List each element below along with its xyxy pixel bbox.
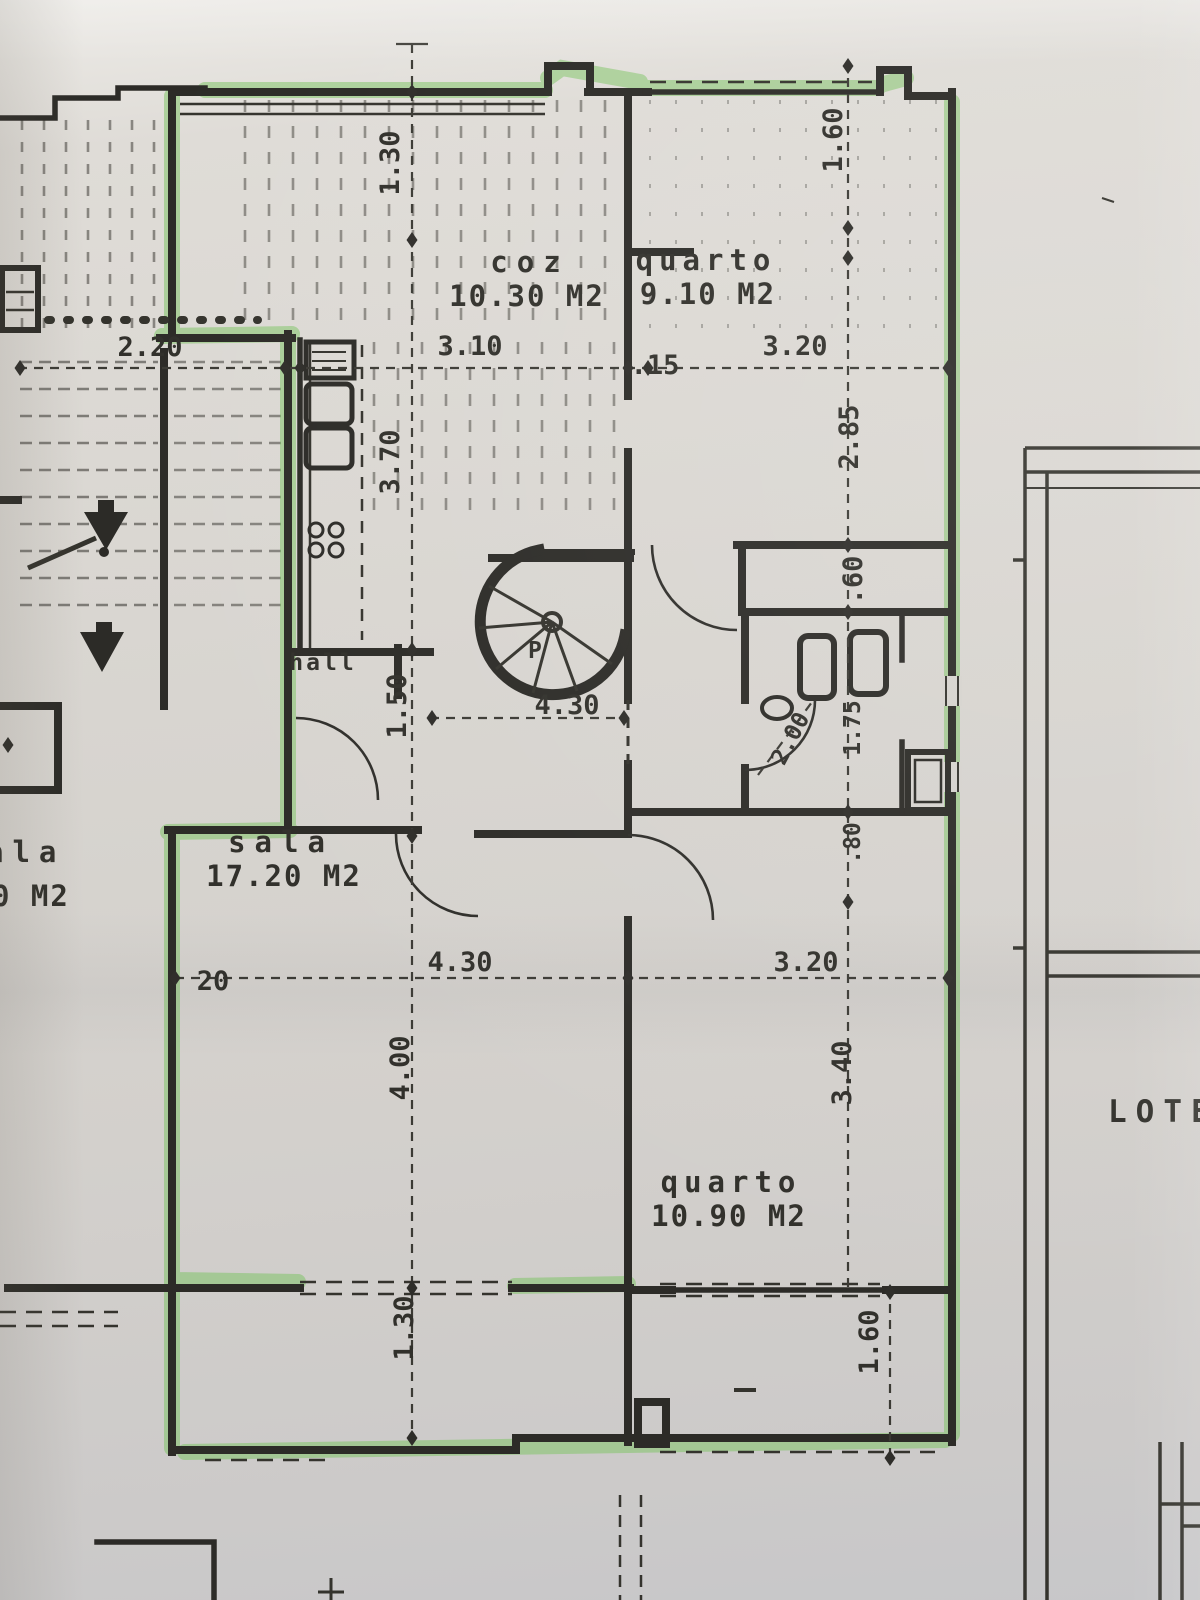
wall-secondary — [0, 88, 902, 1600]
room-area-quarto-bottom: 10.90 M2 — [651, 1199, 807, 1233]
dim-sala-depth: 4.00 — [385, 1035, 416, 1100]
dim-quarto-top-depth: 2.85 — [834, 404, 865, 469]
appliance-icon-2 — [306, 428, 352, 468]
dim-hall-length: 4.30 — [534, 690, 599, 721]
neighbor-fixture-stub — [2, 268, 38, 330]
dim-stair-width: 2.20 — [117, 332, 182, 363]
wall-main — [0, 66, 952, 1452]
dim-wall-15: .15 — [631, 350, 680, 381]
bidet-icon — [850, 632, 886, 694]
room-label-quarto-top: quarto — [636, 243, 777, 277]
toilet-icon — [800, 636, 834, 698]
dim-rec-80: .80 — [840, 822, 866, 864]
neighbor-fixture-lines — [6, 292, 34, 310]
dim-sala-width: 4.30 — [427, 947, 492, 978]
floor-plan-svg: coz 10.30 M2 quarto 9.10 M2 hall sala 17… — [0, 0, 1200, 1600]
spiral-staircase — [479, 550, 632, 695]
survey-mark — [318, 1578, 344, 1600]
dim-quarto-b-depth: 3.40 — [827, 1040, 858, 1105]
lote-label: LOTE — [1108, 1094, 1200, 1130]
dim-closet-60: .60 — [838, 556, 869, 605]
neighbor-room-area-fragment: 0 M2 — [0, 879, 70, 913]
stair-treads-left — [20, 362, 158, 605]
hatch-balcony-top-left — [22, 120, 154, 332]
room-label-coz: coz — [490, 245, 569, 279]
room-area-coz: 10.30 M2 — [449, 279, 605, 313]
dim-balcony-bottom: 1.30 — [389, 1295, 420, 1360]
dim-balcony-top: 1.30 — [375, 130, 406, 195]
burner-icon — [329, 523, 343, 537]
room-area-sala: 17.20 M2 — [206, 859, 362, 893]
dim-coz-depth: 3.70 — [375, 429, 406, 494]
stair-direction-arrows — [80, 500, 128, 672]
lote-boundary-thin — [1025, 198, 1200, 488]
appliance-icon-1 — [306, 384, 352, 424]
stair-newel-dot — [99, 547, 109, 557]
lote-boundary-lines — [1013, 448, 1200, 1600]
stair-treads-right — [174, 362, 284, 605]
room-label-hall: hall — [289, 650, 356, 676]
dim-hall-width: 1.50 — [382, 673, 413, 738]
neighbor-room-label-fragment: ala — [0, 835, 65, 869]
dim-terrace-bottom: 1.60 — [854, 1309, 885, 1374]
burner-icon — [329, 543, 343, 557]
dim-quarto-top-width: 3.20 — [762, 331, 827, 362]
dim-quarto-b-width: 3.20 — [773, 947, 838, 978]
dim-bath-depth: 1.75 — [840, 700, 866, 755]
room-label-sala: sala — [228, 825, 334, 859]
room-label-quarto-bottom: quarto — [661, 1165, 802, 1199]
dim-terrace-right: 1.60 — [818, 107, 849, 172]
dimension-arrowheads — [3, 58, 954, 1466]
stair-handrail — [28, 538, 96, 568]
kitchen-fixtures — [306, 342, 354, 557]
floor-plan-photo: coz 10.30 M2 quarto 9.10 M2 hall sala 17… — [0, 0, 1200, 1600]
spiral-stair-letter: P — [528, 638, 542, 664]
door-arcs — [296, 545, 815, 920]
shower-inner — [915, 760, 941, 802]
room-area-quarto-top: 9.10 M2 — [640, 277, 776, 311]
dim-coz-width: 3.10 — [437, 331, 502, 362]
lower-floor-dashed — [620, 1495, 641, 1600]
dim-wall-20: 20 — [197, 966, 230, 997]
